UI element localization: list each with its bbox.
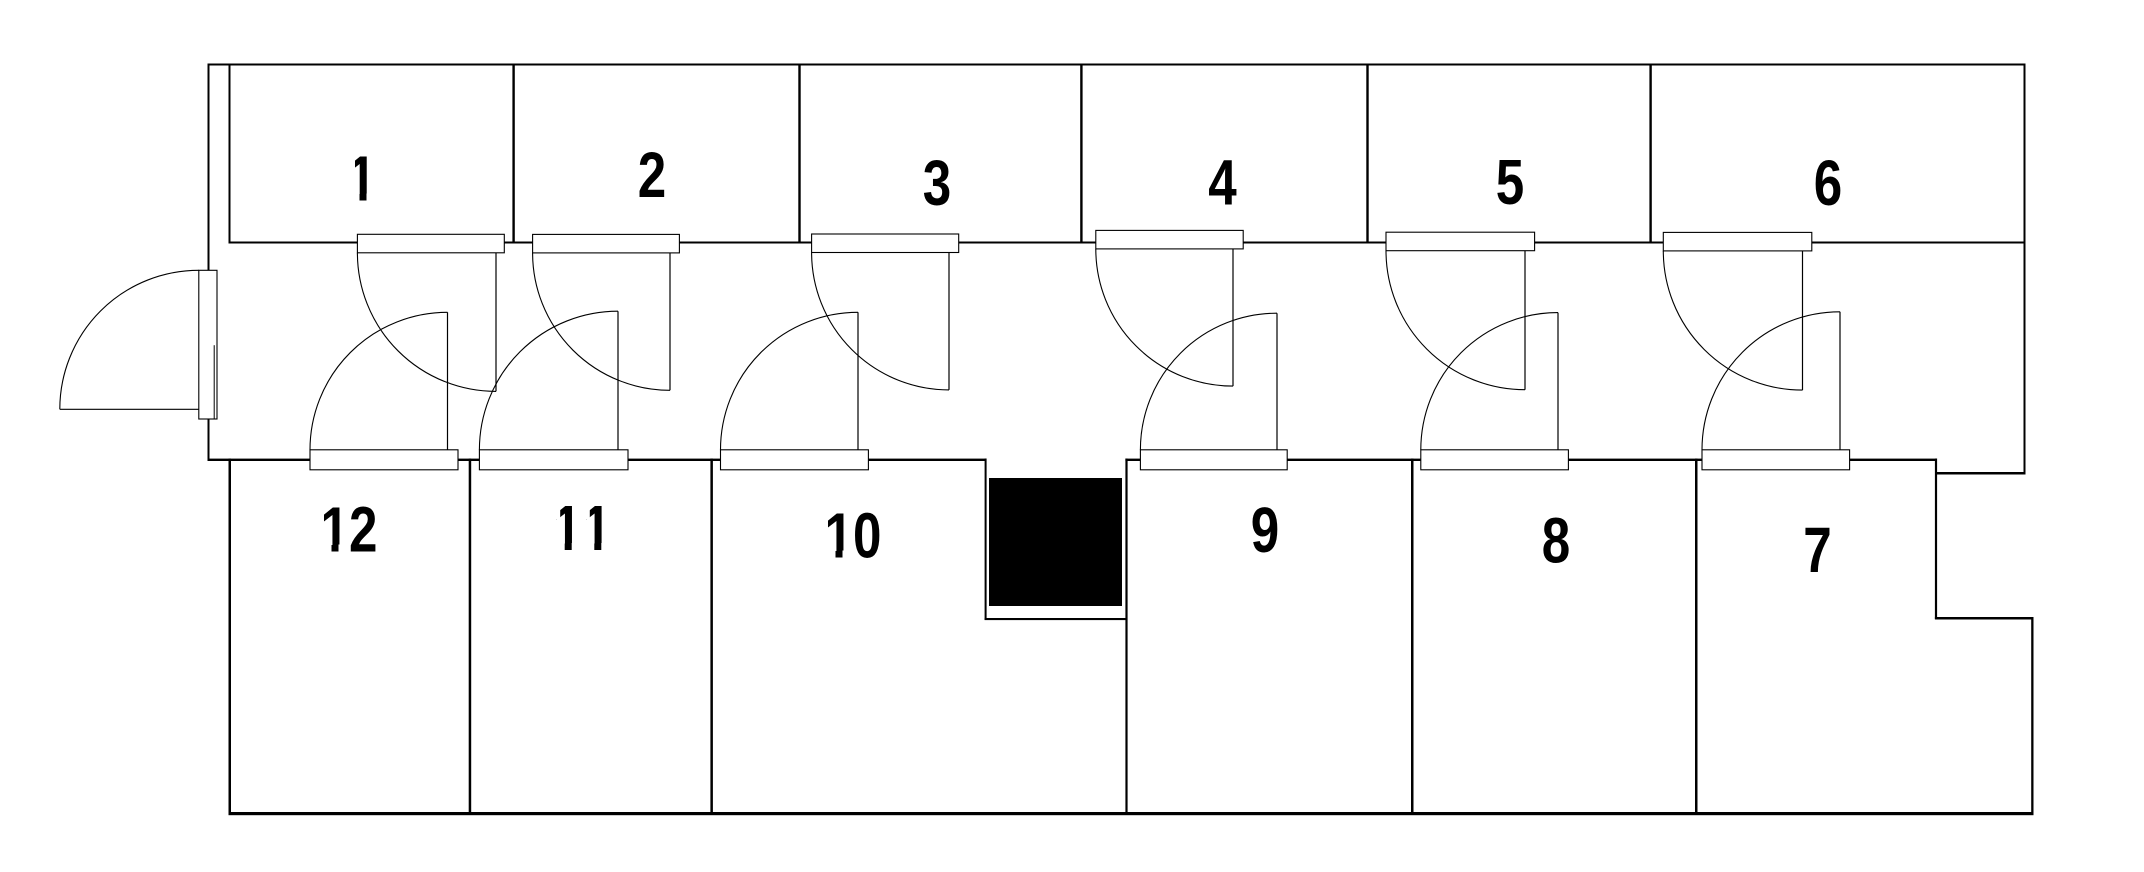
svg-text:3: 3 [923, 149, 951, 220]
svg-text:10: 10 [825, 501, 882, 572]
svg-text:9: 9 [1251, 496, 1279, 567]
svg-text:6: 6 [1814, 149, 1842, 220]
svg-text:4: 4 [1208, 148, 1236, 219]
svg-text:12: 12 [321, 495, 378, 566]
svg-text:5: 5 [1496, 148, 1524, 219]
svg-text:2: 2 [638, 141, 666, 212]
svg-text:7: 7 [1803, 516, 1831, 587]
svg-text:8: 8 [1542, 506, 1570, 577]
